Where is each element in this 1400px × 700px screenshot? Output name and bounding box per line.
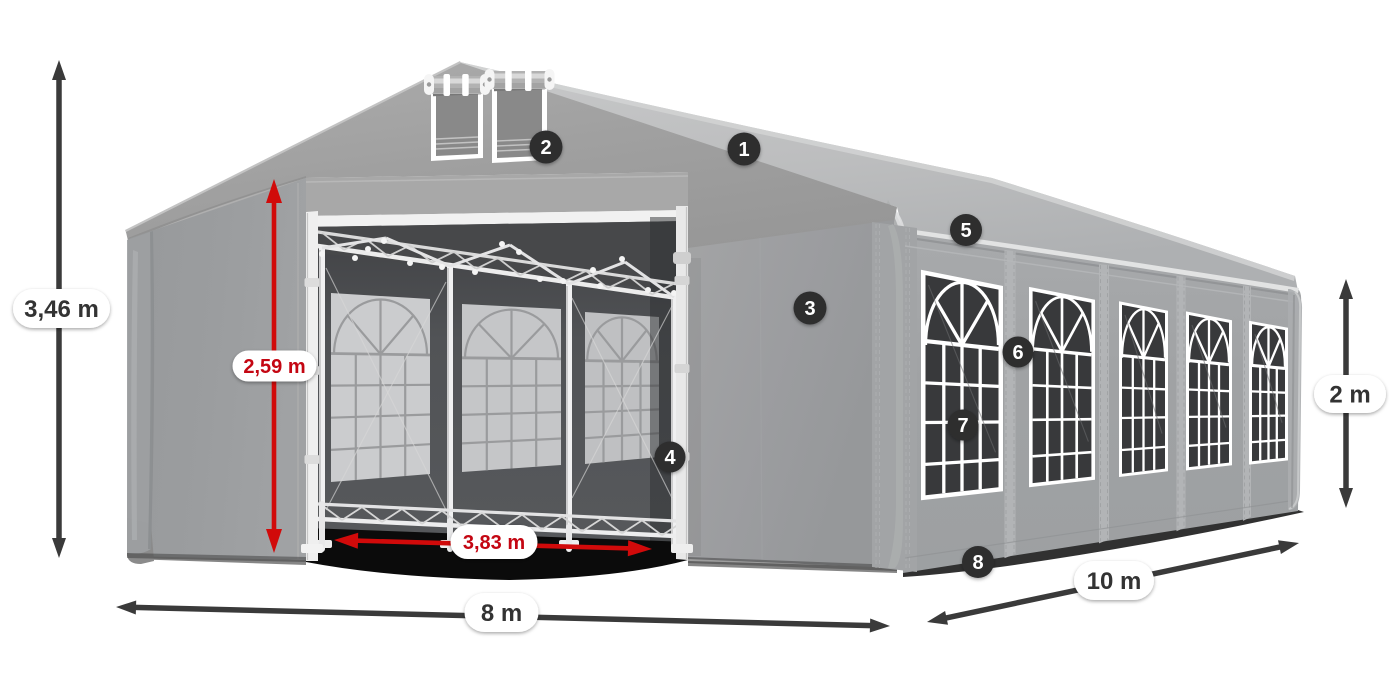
svg-text:3: 3 (804, 298, 815, 320)
svg-text:5: 5 (960, 220, 971, 242)
svg-text:1: 1 (738, 139, 749, 161)
svg-text:8: 8 (972, 552, 983, 574)
svg-text:3,83 m: 3,83 m (463, 532, 525, 554)
svg-text:3,46 m: 3,46 m (24, 296, 99, 323)
svg-text:7: 7 (957, 415, 968, 437)
svg-text:4: 4 (664, 447, 676, 469)
svg-text:2 m: 2 m (1329, 382, 1370, 409)
svg-text:6: 6 (1012, 342, 1023, 364)
svg-text:8 m: 8 m (481, 600, 522, 627)
svg-text:10 m: 10 m (1087, 568, 1142, 595)
svg-text:2: 2 (540, 137, 551, 159)
svg-text:2,59 m: 2,59 m (243, 356, 305, 378)
